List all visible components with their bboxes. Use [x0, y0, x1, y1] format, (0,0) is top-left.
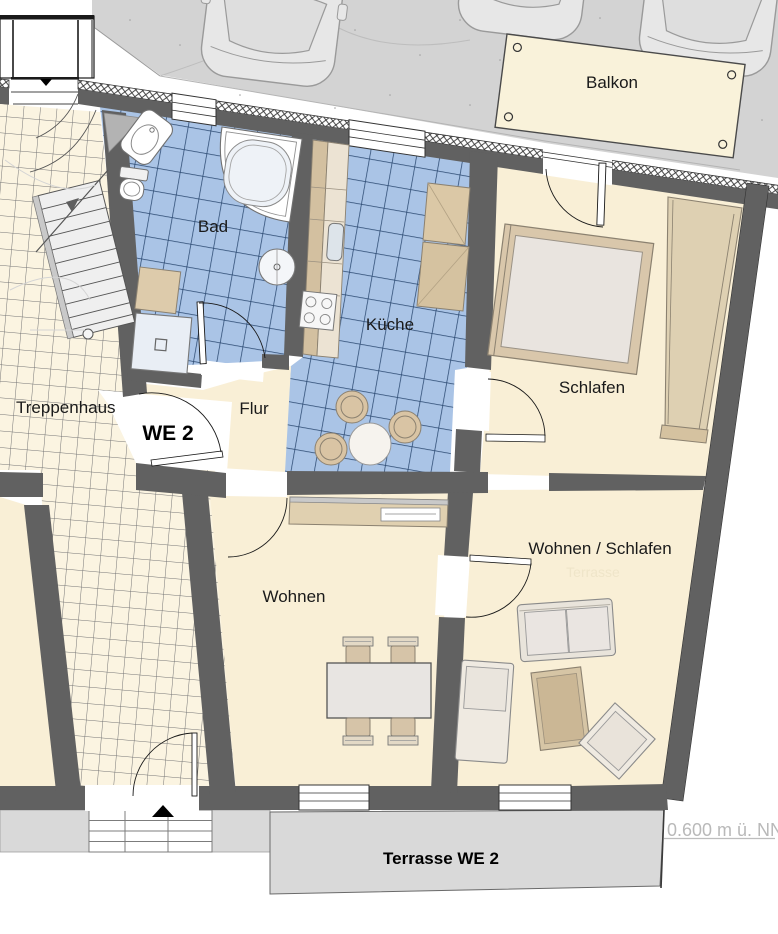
- svg-text:0.600 m ü. NN: 0.600 m ü. NN: [667, 820, 778, 840]
- svg-text:Wohnen: Wohnen: [262, 587, 325, 606]
- svg-text:Terrasse WE 2: Terrasse WE 2: [383, 849, 499, 868]
- svg-text:Flur: Flur: [239, 399, 269, 418]
- svg-text:Treppenhaus: Treppenhaus: [16, 398, 116, 417]
- svg-text:WE 2: WE 2: [142, 422, 193, 445]
- svg-text:Wohnen / Schlafen: Wohnen / Schlafen: [528, 539, 671, 558]
- svg-text:Schlafen: Schlafen: [559, 378, 625, 397]
- svg-text:Küche: Küche: [366, 315, 414, 334]
- svg-text:Bad: Bad: [198, 217, 228, 236]
- svg-text:Balkon: Balkon: [586, 73, 638, 92]
- svg-text:Terrasse: Terrasse: [566, 564, 620, 580]
